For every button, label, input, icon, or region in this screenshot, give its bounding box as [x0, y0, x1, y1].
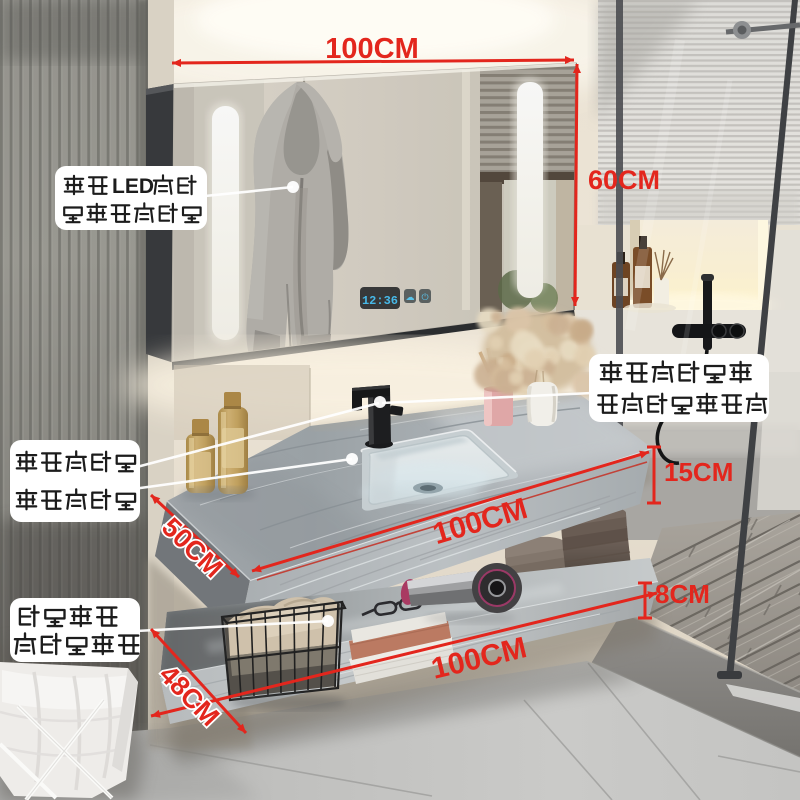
- svg-text:100CM: 100CM: [325, 33, 419, 65]
- svg-text:60CM: 60CM: [588, 165, 660, 195]
- svg-text:8CM: 8CM: [655, 579, 710, 609]
- svg-text:LED: LED: [112, 175, 154, 198]
- svg-text:15CM: 15CM: [664, 457, 733, 487]
